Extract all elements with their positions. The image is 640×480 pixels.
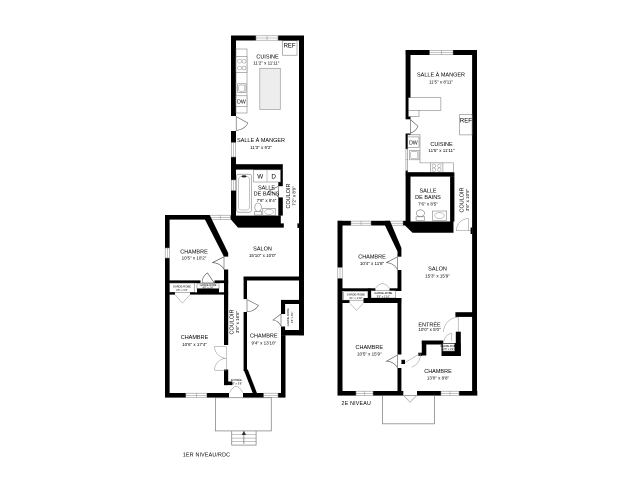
svg-text:DE BAINS: DE BAINS bbox=[254, 192, 280, 198]
svg-text:REF: REF bbox=[284, 43, 296, 49]
svg-text:10'0" x 5'0": 10'0" x 5'0" bbox=[418, 327, 441, 332]
svg-text:13'0" x 8'8": 13'0" x 8'8" bbox=[427, 375, 450, 380]
svg-text:SALON: SALON bbox=[253, 246, 272, 252]
svg-text:GARDE-ROBE: GARDE-ROBE bbox=[286, 308, 290, 326]
svg-text:3'6" x 10'9": 3'6" x 10'9" bbox=[465, 189, 470, 212]
svg-text:CHAMBRE: CHAMBRE bbox=[250, 334, 278, 340]
svg-text:15'10" x 10'0": 15'10" x 10'0" bbox=[249, 253, 277, 258]
svg-text:4'1" x 1'10": 4'1" x 1'10" bbox=[349, 296, 362, 300]
svg-text:SALLE: SALLE bbox=[419, 188, 436, 194]
svg-text:15'3" x 15'9": 15'3" x 15'9" bbox=[425, 273, 450, 278]
svg-text:11'5" x 8'11": 11'5" x 8'11" bbox=[429, 80, 453, 85]
svg-text:11'2" x 11'11": 11'2" x 11'11" bbox=[253, 60, 280, 65]
svg-text:4'5" x 1'9": 4'5" x 1'9" bbox=[176, 288, 188, 292]
svg-text:REF: REF bbox=[460, 119, 472, 125]
svg-text:1ER NIVEAU/RDC: 1ER NIVEAU/RDC bbox=[183, 452, 230, 458]
svg-text:11'5" x 11'11": 11'5" x 11'11" bbox=[428, 148, 455, 153]
svg-text:7'8" x 8'4": 7'8" x 8'4" bbox=[257, 198, 277, 203]
svg-text:DE BAINS: DE BAINS bbox=[415, 195, 441, 201]
svg-text:7'2" x 8'9": 7'2" x 8'9" bbox=[292, 186, 297, 206]
svg-text:9'4" x 13'10": 9'4" x 13'10" bbox=[251, 340, 276, 345]
svg-text:2E NIVEAU: 2E NIVEAU bbox=[342, 401, 371, 407]
svg-text:SALLE À MANGER: SALLE À MANGER bbox=[417, 72, 465, 79]
svg-text:CHAMBRE: CHAMBRE bbox=[356, 345, 384, 351]
svg-text:11'3" x 9'2": 11'3" x 9'2" bbox=[250, 145, 272, 150]
svg-text:10'6" x 17'4": 10'6" x 17'4" bbox=[182, 342, 207, 347]
svg-text:SALLE À MANGER: SALLE À MANGER bbox=[237, 137, 285, 144]
svg-text:SALON: SALON bbox=[428, 267, 447, 273]
svg-text:CHAMBRE: CHAMBRE bbox=[358, 254, 386, 260]
svg-text:10'5" x 10'2": 10'5" x 10'2" bbox=[182, 256, 207, 261]
svg-text:10'4" x 11'8": 10'4" x 11'8" bbox=[360, 261, 385, 266]
svg-text:GARDE-ROBE: GARDE-ROBE bbox=[374, 291, 392, 295]
svg-text:10'5" x 15'9": 10'5" x 15'9" bbox=[357, 352, 382, 357]
svg-text:W: W bbox=[257, 174, 263, 181]
svg-text:GARDE-ROBE: GARDE-ROBE bbox=[347, 292, 365, 296]
svg-text:4'8" x 3'8": 4'8" x 3'8" bbox=[230, 382, 242, 386]
svg-text:D: D bbox=[271, 174, 276, 181]
svg-text:CHAMBRE: CHAMBRE bbox=[424, 369, 452, 375]
svg-text:DW: DW bbox=[237, 100, 246, 106]
svg-text:3'6" x 16'6": 3'6" x 16'6" bbox=[235, 311, 240, 334]
svg-text:2'4" x 6'1": 2'4" x 6'1" bbox=[290, 311, 294, 323]
svg-text:GARDE-ROBE: GARDE-ROBE bbox=[173, 284, 191, 288]
svg-text:CHAMBRE: CHAMBRE bbox=[181, 335, 209, 341]
svg-text:7'6" x 8'5": 7'6" x 8'5" bbox=[418, 201, 438, 206]
svg-text:2'5" x 2'4": 2'5" x 2'4" bbox=[443, 348, 454, 351]
svg-text:DW: DW bbox=[409, 141, 418, 147]
